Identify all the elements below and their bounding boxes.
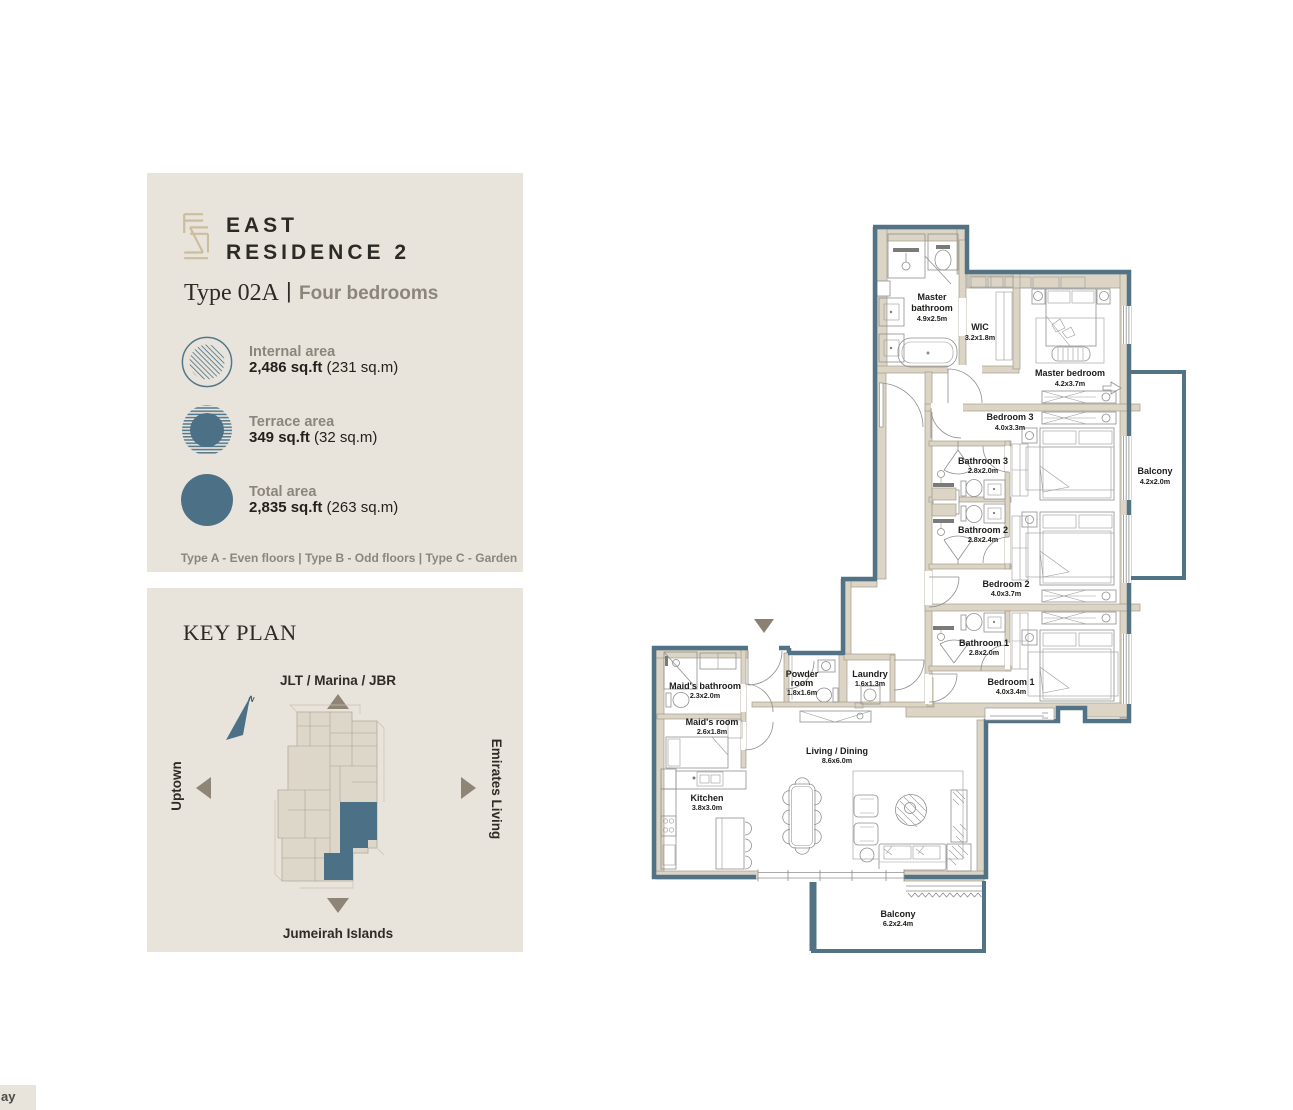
svg-text:Master bedroom: Master bedroom: [1035, 368, 1105, 378]
svg-text:Maid's bathroom: Maid's bathroom: [669, 681, 741, 691]
svg-text:room: room: [791, 678, 814, 688]
svg-text:Bedroom 2: Bedroom 2: [982, 579, 1029, 589]
svg-text:4.0x3.3m: 4.0x3.3m: [995, 423, 1025, 432]
svg-text:Bathroom 1: Bathroom 1: [959, 638, 1009, 648]
svg-text:1.8x1.6m: 1.8x1.6m: [787, 688, 817, 697]
svg-text:Kitchen: Kitchen: [690, 793, 723, 803]
svg-text:Living / Dining: Living / Dining: [806, 746, 868, 756]
svg-text:4.0x3.7m: 4.0x3.7m: [991, 589, 1021, 598]
svg-text:4.2x2.0m: 4.2x2.0m: [1140, 477, 1170, 486]
svg-text:WIC: WIC: [971, 322, 989, 332]
svg-text:2.6x1.8m: 2.6x1.8m: [697, 727, 727, 736]
svg-text:Emirates Living: Emirates Living: [489, 739, 504, 840]
svg-text:4.2x3.7m: 4.2x3.7m: [1055, 379, 1085, 388]
svg-text:2.8x2.4m: 2.8x2.4m: [968, 535, 998, 544]
svg-text:JLT / Marina / JBR: JLT / Marina / JBR: [280, 673, 396, 688]
svg-text:Maid's room: Maid's room: [686, 717, 739, 727]
svg-text:Uptown: Uptown: [169, 761, 184, 811]
svg-text:3.2x1.8m: 3.2x1.8m: [965, 333, 995, 342]
svg-text:Bedroom 1: Bedroom 1: [987, 677, 1034, 687]
svg-text:bathroom: bathroom: [911, 303, 953, 313]
svg-text:Balcony: Balcony: [1137, 466, 1172, 476]
svg-text:8.6x6.0m: 8.6x6.0m: [822, 756, 852, 765]
svg-text:Bedroom 3: Bedroom 3: [986, 412, 1033, 422]
svg-text:Bathroom 3: Bathroom 3: [958, 456, 1008, 466]
svg-text:2.8x2.0m: 2.8x2.0m: [969, 648, 999, 657]
svg-text:4.9x2.5m: 4.9x2.5m: [917, 314, 947, 323]
svg-text:Laundry: Laundry: [852, 669, 888, 679]
svg-text:1.6x1.3m: 1.6x1.3m: [855, 679, 885, 688]
svg-text:Bathroom 2: Bathroom 2: [958, 525, 1008, 535]
svg-text:Jumeirah Islands: Jumeirah Islands: [283, 926, 393, 941]
svg-text:2.3x2.0m: 2.3x2.0m: [690, 691, 720, 700]
svg-text:2.8x2.0m: 2.8x2.0m: [968, 466, 998, 475]
svg-text:6.2x2.4m: 6.2x2.4m: [883, 919, 913, 928]
svg-text:Master: Master: [917, 292, 947, 302]
svg-text:3.8x3.0m: 3.8x3.0m: [692, 803, 722, 812]
svg-text:4.0x3.4m: 4.0x3.4m: [996, 687, 1026, 696]
svg-text:Balcony: Balcony: [880, 909, 915, 919]
